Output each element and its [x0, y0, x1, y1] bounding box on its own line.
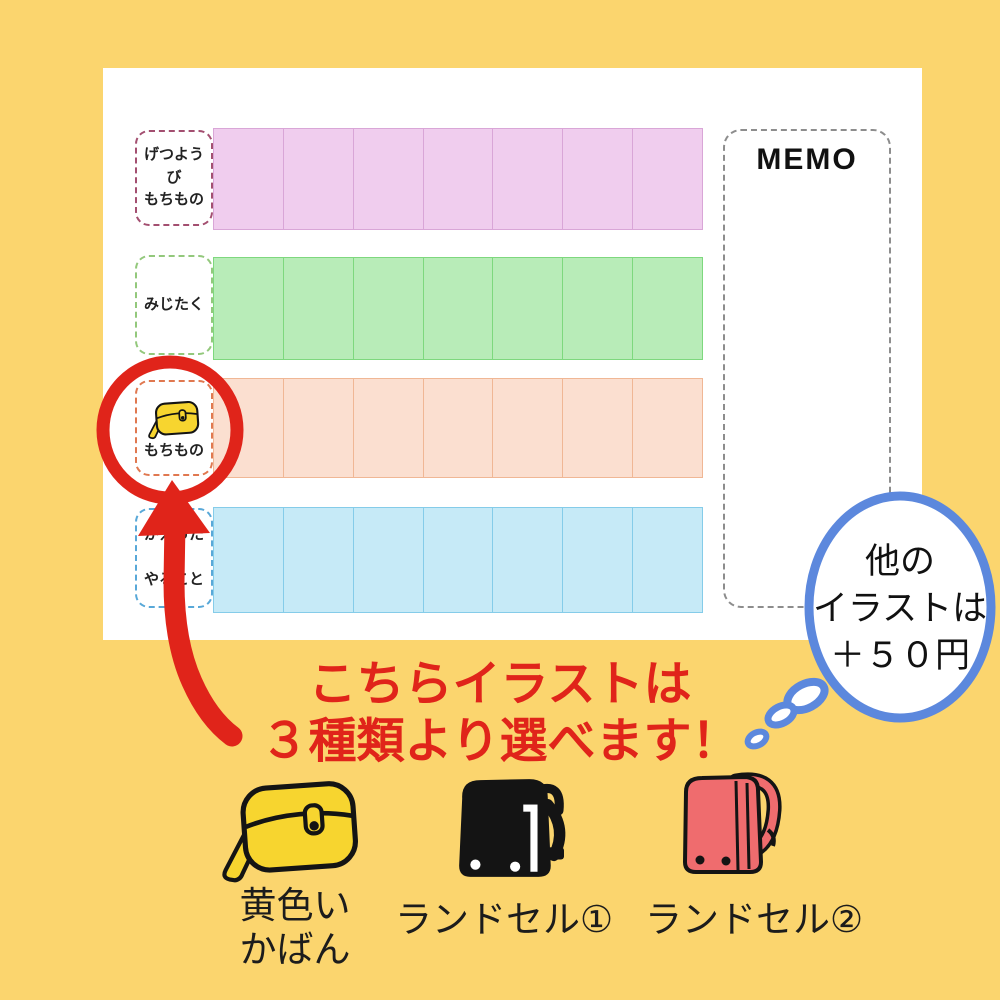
- grid-cell: [284, 129, 354, 229]
- option-label-line: ランドセル①: [395, 898, 610, 942]
- row-label-after-school-tasks: かえったら やること: [135, 508, 213, 608]
- grid-cell: [214, 379, 284, 477]
- row-label-line: やること: [144, 569, 204, 592]
- headline-line-2: ３種類より選べます！: [230, 713, 770, 770]
- row-label-line: もちもの: [144, 440, 204, 463]
- grid-cell: [563, 129, 633, 229]
- grid-cell: [284, 379, 354, 477]
- grid-cell: [354, 379, 424, 477]
- headline-line-1: こちらイラストは: [230, 656, 770, 713]
- grid-cell: [424, 508, 494, 612]
- bubble-note: 他の イラストは ＋５０円: [800, 538, 1000, 679]
- option-label-line: かばん: [195, 928, 395, 972]
- grid-cell: [493, 508, 563, 612]
- grid-cell: [214, 258, 284, 359]
- option-label-yellow-bag: 黄色い かばん: [195, 884, 395, 972]
- option-label-randoseru-1: ランドセル①: [395, 898, 610, 942]
- grid-cell: [633, 129, 702, 229]
- row-label-monday-belongings: げつようび もちもの: [135, 130, 213, 226]
- yellow-bag-icon: [212, 773, 370, 885]
- grid-cell: [563, 379, 633, 477]
- black-randoseru-icon: [440, 774, 576, 886]
- grid-cell: [214, 129, 284, 229]
- grid-cell: [354, 129, 424, 229]
- row-grid-belongings: [213, 378, 703, 478]
- grid-cell: [284, 508, 354, 612]
- product-flyer: げつようび もちもの みじたく もちもの かえったら やること: [0, 0, 1000, 1000]
- row-grid-after-school-tasks: [213, 507, 703, 613]
- bubble-line: イラストは: [800, 585, 1000, 632]
- grid-cell: [424, 129, 494, 229]
- bubble-line: ＋５０円: [800, 632, 1000, 679]
- option-label-line: ランドセル②: [645, 898, 860, 942]
- headline: こちらイラストは ３種類より選べます！: [230, 656, 770, 770]
- row-label-line: げつようび: [137, 144, 211, 189]
- row-grid-getting-ready: [213, 257, 703, 360]
- grid-cell: [633, 258, 702, 359]
- row-label-line: みじたく: [144, 294, 204, 317]
- row-grid-monday-belongings: [213, 128, 703, 230]
- yellow-bag-icon: [146, 398, 202, 440]
- grid-cell: [354, 508, 424, 612]
- option-label-randoseru-2: ランドセル②: [645, 898, 860, 942]
- bubble-line: 他の: [800, 538, 1000, 585]
- grid-cell: [214, 508, 284, 612]
- red-randoseru-icon: [670, 772, 800, 882]
- grid-cell: [563, 508, 633, 612]
- grid-cell: [493, 258, 563, 359]
- grid-cell: [284, 258, 354, 359]
- grid-cell: [633, 379, 702, 477]
- grid-cell: [354, 258, 424, 359]
- grid-cell: [424, 379, 494, 477]
- row-label-line: もちもの: [144, 189, 204, 212]
- grid-cell: [633, 508, 702, 612]
- grid-cell: [563, 258, 633, 359]
- grid-cell: [493, 129, 563, 229]
- row-label-belongings: もちもの: [135, 380, 213, 476]
- grid-cell: [493, 379, 563, 477]
- row-label-line: かえったら: [137, 524, 211, 569]
- grid-cell: [424, 258, 494, 359]
- row-label-getting-ready: みじたく: [135, 255, 213, 355]
- option-label-line: 黄色い: [195, 884, 395, 928]
- memo-title: MEMO: [725, 143, 889, 177]
